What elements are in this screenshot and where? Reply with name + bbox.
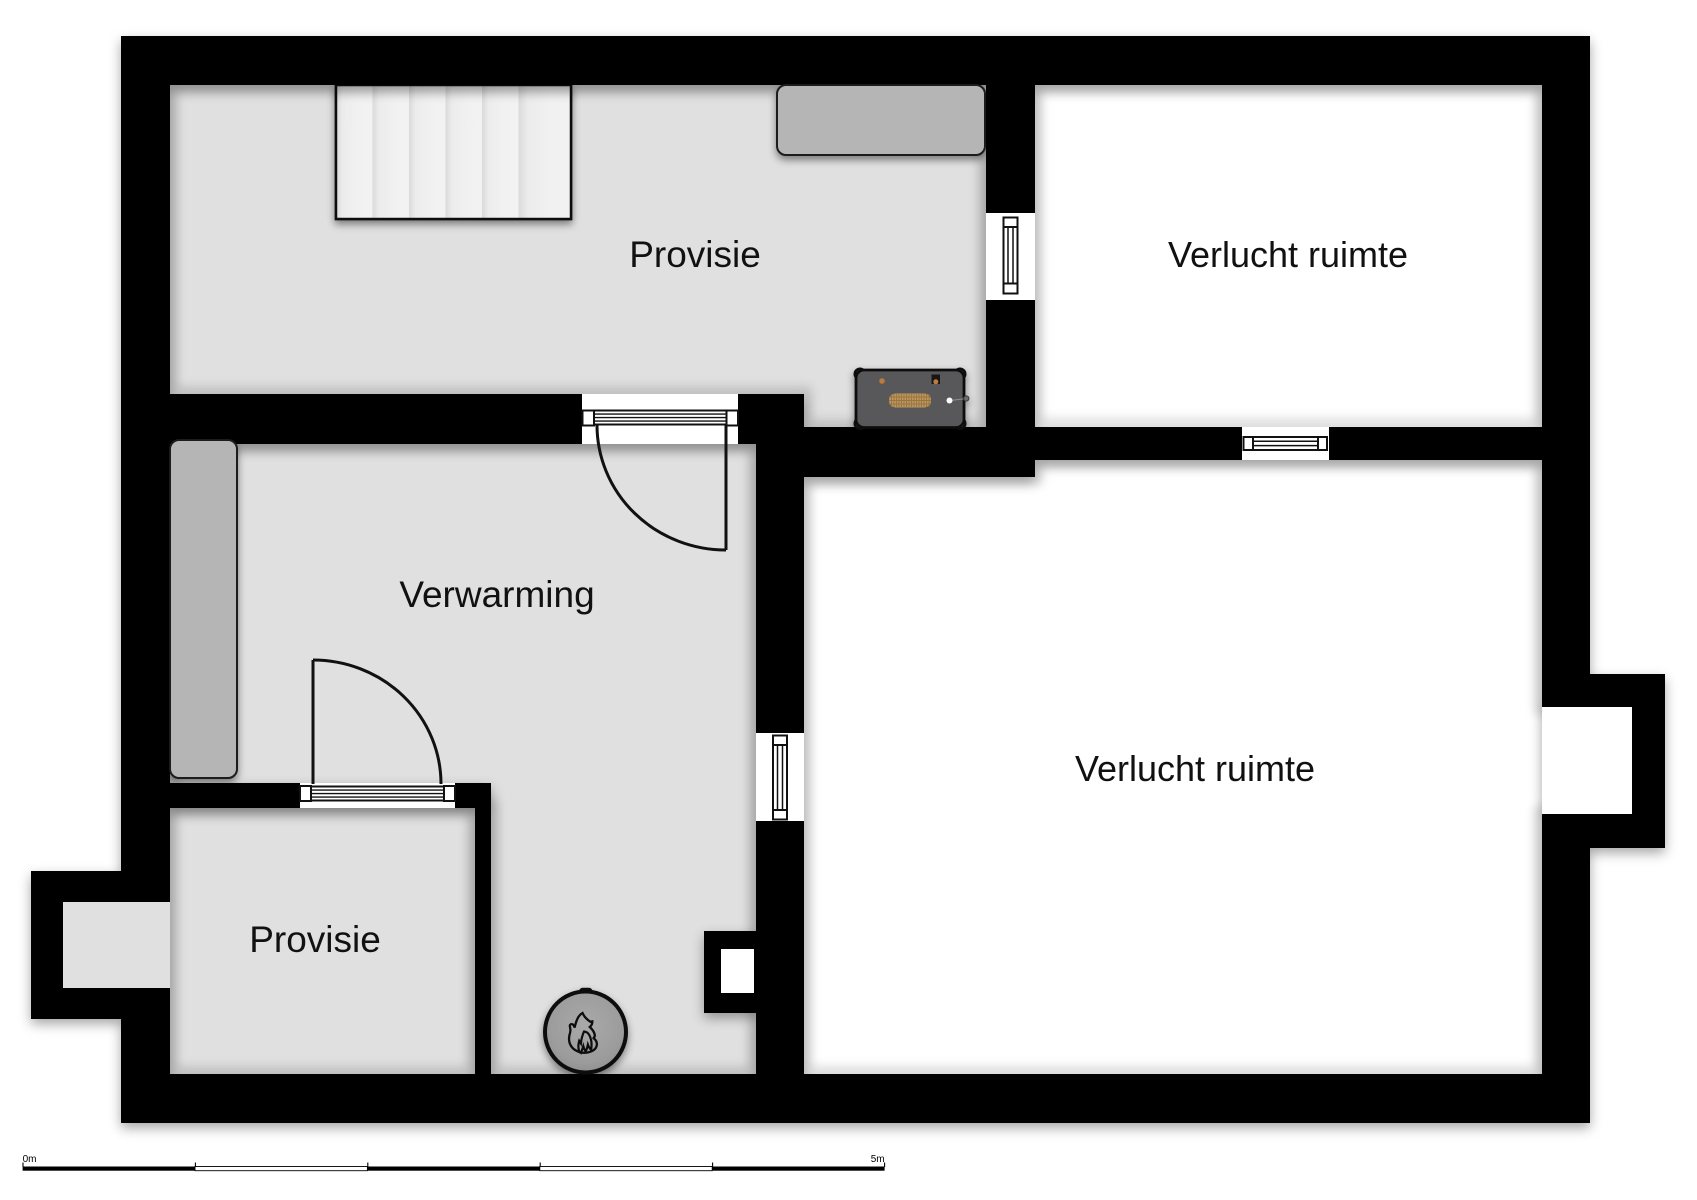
svg-text:Verlucht ruimte: Verlucht ruimte — [1168, 234, 1408, 275]
svg-text:Provisie: Provisie — [249, 919, 381, 960]
svg-text:Provisie: Provisie — [629, 234, 761, 275]
svg-text:Verlucht ruimte: Verlucht ruimte — [1075, 748, 1315, 789]
svg-text:5m: 5m — [871, 1154, 885, 1165]
svg-text:Verwarming: Verwarming — [399, 574, 594, 615]
svg-text:0m: 0m — [23, 1154, 37, 1165]
